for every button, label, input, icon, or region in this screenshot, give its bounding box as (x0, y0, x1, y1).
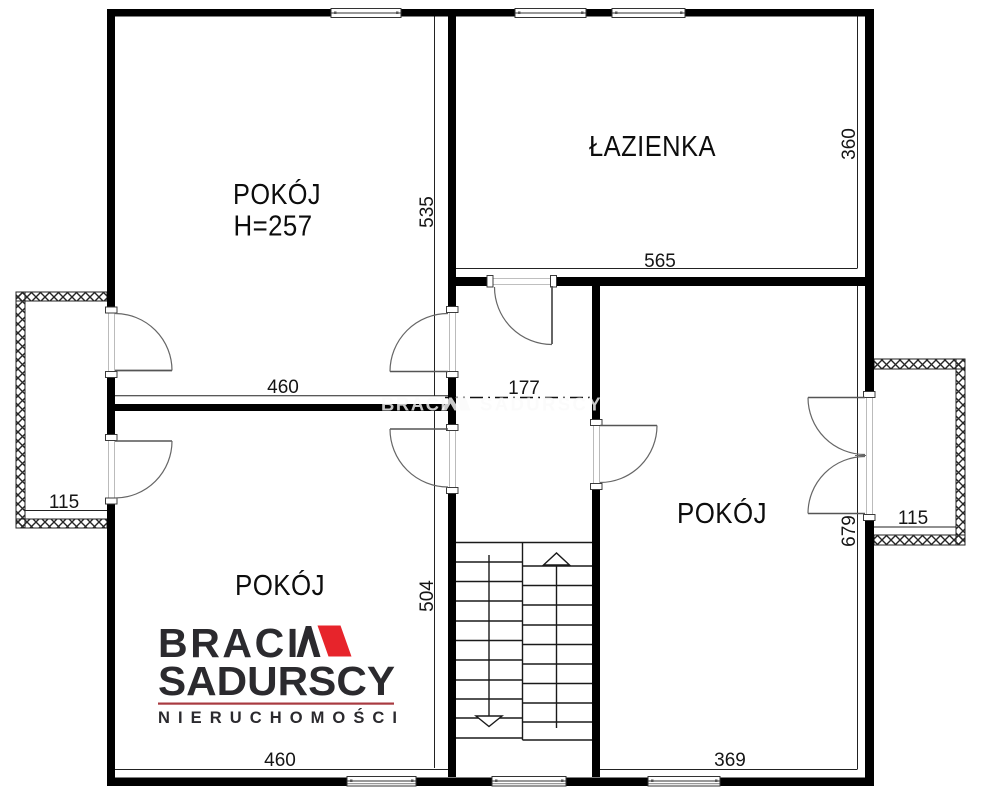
svg-text:SADURSCY: SADURSCY (158, 658, 395, 704)
svg-text:SADURSCY: SADURSCY (480, 394, 603, 415)
svg-text:565: 565 (644, 251, 676, 272)
svg-text:369: 369 (714, 750, 746, 771)
svg-text:460: 460 (267, 377, 299, 398)
svg-text:460: 460 (264, 750, 296, 771)
svg-text:535: 535 (417, 196, 438, 228)
svg-text:360: 360 (839, 128, 860, 160)
svg-text:115: 115 (898, 508, 928, 529)
svg-text:POKÓJ: POKÓJ (233, 178, 321, 211)
svg-text:POKÓJ: POKÓJ (235, 569, 325, 602)
svg-text:ŁAZIENKA: ŁAZIENKA (589, 131, 716, 163)
svg-text:BRACI: BRACI (381, 394, 447, 415)
svg-text:H=257: H=257 (234, 211, 313, 243)
svg-text:115: 115 (49, 492, 79, 513)
svg-text:679: 679 (839, 515, 860, 547)
svg-text:504: 504 (417, 580, 438, 612)
svg-text:POKÓJ: POKÓJ (677, 497, 767, 530)
svg-text:NIERUCHOMOŚCI: NIERUCHOMOŚCI (158, 708, 397, 727)
